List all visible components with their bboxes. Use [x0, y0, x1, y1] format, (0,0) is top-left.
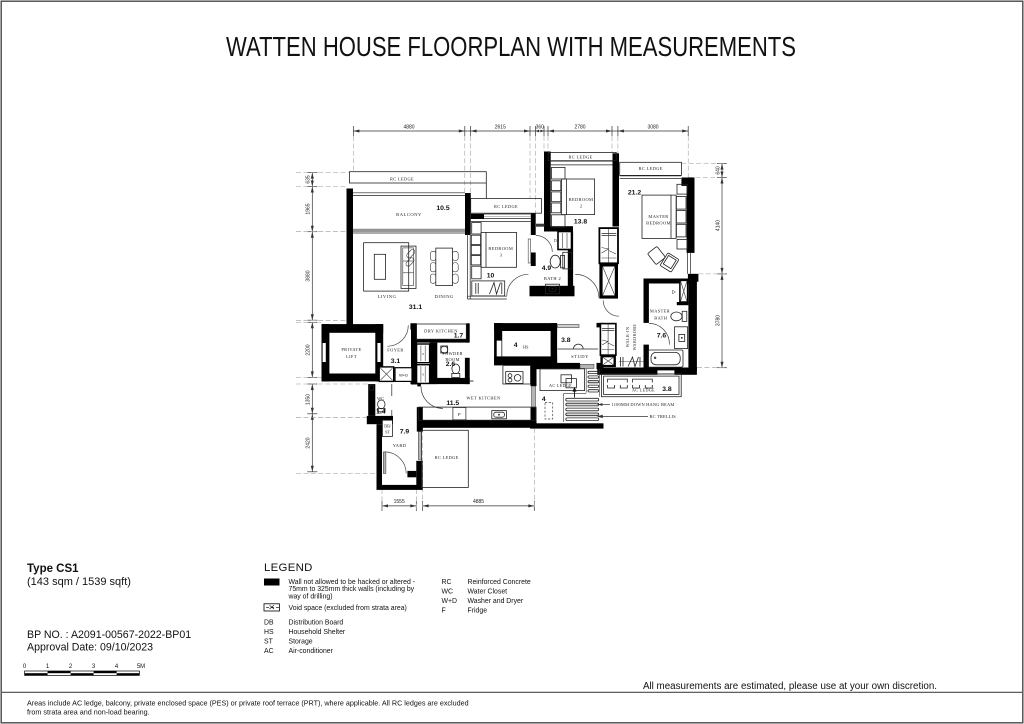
- svg-text:4885: 4885: [473, 499, 484, 505]
- svg-text:RC LEDGE: RC LEDGE: [639, 166, 663, 171]
- svg-text:AC LEDGE: AC LEDGE: [632, 387, 655, 392]
- svg-text:RC LEDGE: RC LEDGE: [568, 155, 592, 160]
- svg-text:11.5: 11.5: [446, 400, 459, 407]
- svg-text:BP NO. : A2091-00567-2022-BP01: BP NO. : A2091-00567-2022-BP01: [27, 629, 191, 641]
- svg-text:DB: DB: [264, 620, 274, 627]
- svg-text:7.9: 7.9: [400, 428, 410, 435]
- svg-text:ST: ST: [264, 639, 274, 646]
- svg-text:4: 4: [514, 342, 518, 349]
- svg-text:MASTER: MASTER: [648, 214, 668, 219]
- svg-text:WC: WC: [442, 589, 454, 596]
- svg-text:HS: HS: [264, 629, 274, 636]
- svg-text:from strata area and non-load: from strata area and non-load bearing.: [27, 708, 150, 717]
- svg-text:RC: RC: [442, 579, 452, 586]
- svg-text:DINING: DINING: [435, 294, 455, 299]
- svg-text:LEGEND: LEGEND: [264, 562, 313, 574]
- svg-text:RC TRELLIS: RC TRELLIS: [650, 414, 677, 419]
- svg-text:3.1: 3.1: [391, 358, 401, 365]
- svg-text:Washer and Dryer: Washer and Dryer: [468, 598, 524, 605]
- svg-text:F: F: [458, 412, 461, 417]
- svg-text:BATH 2: BATH 2: [544, 276, 561, 281]
- svg-text:Water Closet: Water Closet: [468, 589, 508, 596]
- svg-text:10.5: 10.5: [436, 205, 449, 212]
- svg-text:RC LEDGE: RC LEDGE: [390, 176, 414, 181]
- svg-text:WET KITCHEN: WET KITCHEN: [466, 395, 501, 400]
- svg-text:MASTER: MASTER: [650, 308, 670, 313]
- svg-text:3780: 3780: [715, 315, 721, 326]
- svg-text:3880: 3880: [306, 270, 312, 281]
- svg-text:LIFT: LIFT: [346, 354, 357, 359]
- svg-text:640: 640: [715, 166, 721, 175]
- svg-text:4880: 4880: [403, 124, 414, 130]
- svg-text:3.8: 3.8: [662, 386, 672, 393]
- svg-text:WALK-IN: WALK-IN: [625, 327, 630, 348]
- svg-text:2615: 2615: [495, 124, 506, 130]
- svg-text:Household Shelter: Household Shelter: [289, 629, 346, 636]
- svg-text:BEDROOM: BEDROOM: [488, 246, 513, 251]
- svg-text:DB/: DB/: [384, 423, 392, 428]
- svg-text:2.6: 2.6: [446, 361, 456, 368]
- svg-text:RC LEDGE: RC LEDGE: [494, 204, 518, 209]
- svg-text:All measurements are estimated: All measurements are estimated, please u…: [643, 681, 937, 692]
- svg-text:2420: 2420: [306, 437, 312, 448]
- svg-text:POWDER: POWDER: [442, 351, 462, 356]
- svg-text:3.8: 3.8: [561, 337, 571, 344]
- svg-text:WC: WC: [377, 396, 384, 401]
- svg-text:LIVING: LIVING: [378, 294, 397, 299]
- svg-text:Type CS1: Type CS1: [27, 563, 79, 575]
- svg-text:Wall not allowed to be hacked: Wall not allowed to be hacked or altered…: [289, 579, 416, 586]
- svg-text:2780: 2780: [574, 124, 585, 130]
- svg-text:WARDROBE: WARDROBE: [632, 324, 637, 351]
- svg-text:3080: 3080: [647, 124, 658, 130]
- svg-text:4.9: 4.9: [542, 265, 552, 272]
- svg-text:(143 sqm / 1539 sqft): (143 sqm / 1539 sqft): [27, 576, 131, 588]
- svg-text:W+D: W+D: [442, 598, 458, 605]
- svg-text:4140: 4140: [715, 220, 721, 231]
- svg-text:Areas include AC ledge, balcon: Areas include AC ledge, balcony, private…: [27, 699, 469, 708]
- svg-text:1.7: 1.7: [454, 332, 464, 339]
- svg-text:1100MM DOWN HANG BEAM: 1100MM DOWN HANG BEAM: [612, 402, 675, 407]
- svg-text:BALCONY: BALCONY: [396, 212, 422, 217]
- svg-text:2200: 2200: [306, 344, 312, 355]
- svg-text:FOYER: FOYER: [387, 348, 403, 353]
- svg-text:360: 360: [536, 124, 545, 130]
- svg-text:WATTEN HOUSE FLOORPLAN WITH ME: WATTEN HOUSE FLOORPLAN WITH MEASUREMENTS: [226, 31, 796, 62]
- svg-text:BEDROOM: BEDROOM: [569, 197, 594, 202]
- svg-text:13.8: 13.8: [574, 219, 587, 226]
- svg-text:Approval Date: 09/10/2023: Approval Date: 09/10/2023: [27, 642, 153, 654]
- svg-text:1555: 1555: [394, 499, 405, 505]
- svg-text:x: x: [422, 352, 424, 356]
- svg-text:2: 2: [580, 204, 582, 209]
- svg-text:31.1: 31.1: [409, 304, 422, 311]
- svg-text:F: F: [442, 608, 446, 615]
- svg-text:5M: 5M: [137, 664, 145, 670]
- svg-text:HS: HS: [523, 344, 529, 349]
- svg-text:21.2: 21.2: [628, 190, 641, 197]
- svg-text:RC LEDGE: RC LEDGE: [435, 455, 459, 460]
- svg-text:75mm to 325mm thick walls (inc: 75mm to 325mm thick walls (including by: [289, 586, 415, 593]
- svg-text:AC LEDGE: AC LEDGE: [549, 383, 572, 388]
- svg-text:AC: AC: [264, 648, 274, 655]
- svg-text:Air-conditioner: Air-conditioner: [289, 648, 334, 655]
- svg-text:1350: 1350: [306, 394, 312, 405]
- svg-text:BEDROOM: BEDROOM: [646, 221, 671, 226]
- svg-text:1965: 1965: [306, 203, 312, 214]
- svg-text:4: 4: [542, 396, 546, 403]
- svg-text:BATH: BATH: [654, 315, 667, 320]
- svg-text:W+D: W+D: [399, 373, 408, 378]
- svg-text:Reinforced Concrete: Reinforced Concrete: [468, 579, 531, 586]
- svg-text:10: 10: [487, 273, 495, 280]
- svg-text:635: 635: [306, 175, 312, 184]
- svg-text:7.6: 7.6: [657, 332, 667, 339]
- svg-text:Storage: Storage: [289, 639, 313, 646]
- svg-text:PRIVATE: PRIVATE: [341, 347, 361, 352]
- svg-text:x: x: [422, 373, 424, 377]
- svg-text:1.4: 1.4: [376, 408, 386, 415]
- svg-text:Distribution Board: Distribution Board: [289, 620, 344, 627]
- svg-text:ST: ST: [385, 429, 390, 434]
- svg-text:YARD: YARD: [393, 443, 407, 448]
- svg-text:D: D: [554, 239, 557, 243]
- svg-text:Fridge: Fridge: [468, 608, 488, 615]
- svg-text:Void space (excluded from stra: Void space (excluded from strata area): [289, 605, 407, 612]
- svg-text:way of drilling): way of drilling): [288, 593, 333, 600]
- svg-text:STUDY: STUDY: [571, 354, 589, 359]
